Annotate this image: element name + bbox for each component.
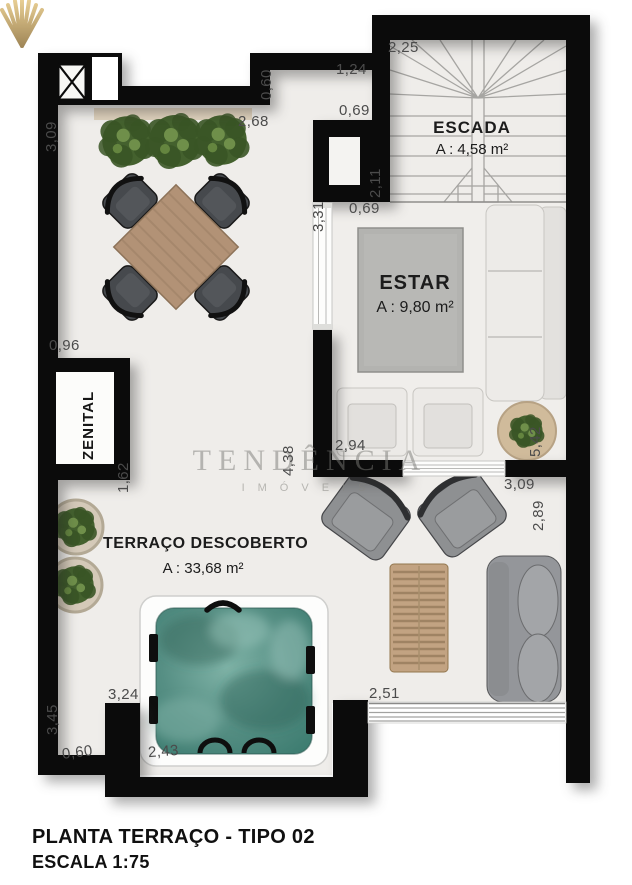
dimension-label: 3,45	[45, 704, 61, 735]
dimension-label: 2,89	[531, 500, 547, 531]
dimension-label: 0,60	[259, 69, 275, 100]
hot-tub	[140, 596, 328, 766]
watermark-subtitle: IMÓVEIS	[170, 482, 450, 494]
room-area-estar: A : 9,80 m²	[340, 299, 490, 317]
shell-logo-icon	[0, 0, 44, 48]
plan-title: PLANTA TERRAÇO - TIPO 02	[32, 826, 315, 849]
room-area-terraco: A : 33,68 m²	[103, 560, 303, 577]
shaft-opening	[329, 137, 360, 185]
wicker-lounger	[390, 564, 448, 672]
dimension-label: 3,09	[44, 121, 60, 152]
dimension-label: 3,09	[504, 477, 535, 493]
duct-shaft-icon	[58, 64, 86, 100]
dimension-label: 0,69	[339, 103, 370, 119]
dimension-label: 2,25	[388, 40, 419, 56]
hedge-plants	[99, 113, 250, 169]
wall-opening	[92, 57, 118, 100]
dimension-label: 2,51	[369, 686, 400, 702]
dimension-label: 1,62	[116, 462, 132, 493]
dimension-label: 4,38	[281, 445, 297, 476]
dimension-label: 3,24	[108, 687, 139, 703]
floor-plan: TENDÊNCIA IMÓVEIS ESCADA A : 4,58 m² EST…	[0, 0, 632, 885]
dimension-label: 0,69	[349, 201, 380, 217]
estar-sofa	[486, 205, 566, 401]
watermark-brand: TENDÊNCIA	[150, 444, 470, 478]
room-label-zenital: ZENITAL	[80, 382, 98, 460]
terrace-sofa	[487, 556, 561, 702]
dimension-label: 2,43	[147, 743, 179, 761]
room-label-escada: ESCADA	[397, 118, 547, 138]
room-label-terraco: TERRAÇO DESCOBERTO	[103, 535, 303, 553]
dimension-label: 5,42	[528, 426, 544, 457]
room-area-escada: A : 4,58 m²	[397, 141, 547, 158]
dimension-label: 1,24	[336, 62, 367, 78]
dimension-label: 2,68	[238, 114, 269, 130]
dimension-label: 3,31	[311, 201, 327, 232]
room-label-estar: ESTAR	[340, 272, 490, 295]
dining-set	[99, 170, 253, 324]
dimension-label: 2,94	[335, 438, 366, 454]
dimension-label: 0,96	[49, 338, 80, 354]
terrace-railing	[368, 702, 566, 723]
plan-scale: ESCALA 1:75	[32, 852, 150, 873]
dimension-label: 2,11	[368, 168, 384, 198]
